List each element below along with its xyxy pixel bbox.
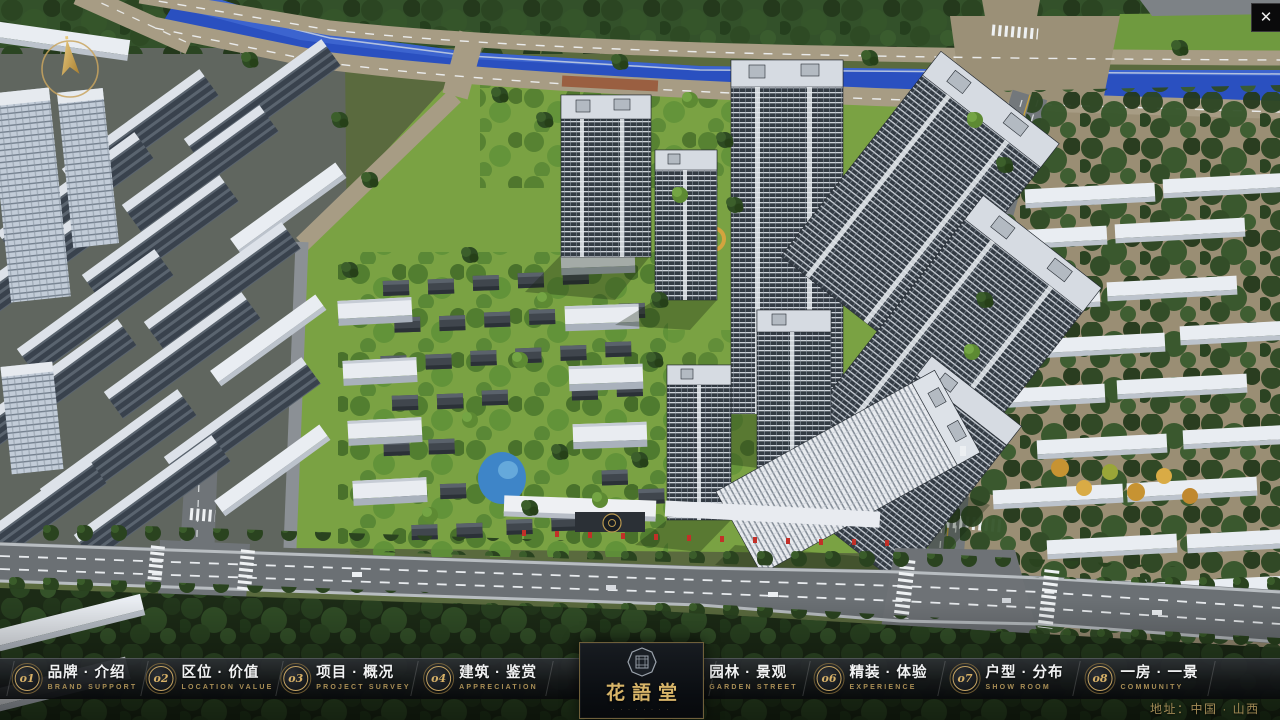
- logo-tagline: · · · · · · · ·: [613, 707, 671, 713]
- nav-badge: o8: [1088, 666, 1113, 691]
- divider: [6, 661, 14, 696]
- divider: [1072, 661, 1080, 696]
- masterplan-render[interactable]: [0, 0, 1280, 720]
- nav-label-zh: 品牌 · 介绍: [48, 666, 138, 681]
- nav-badge: o4: [426, 666, 451, 691]
- nav-badge: o6: [817, 666, 842, 691]
- divider: [1207, 661, 1215, 696]
- divider: [410, 661, 418, 696]
- nav-badge: o2: [149, 666, 174, 691]
- nav-item-interior[interactable]: o6 精装 · 体验 EXPERIENCE: [817, 659, 928, 698]
- nav-label-en: GARDEN STREET: [709, 684, 798, 691]
- nav-badge: o7: [953, 666, 978, 691]
- nav-label-zh: 精装 · 体验: [850, 666, 928, 681]
- divider: [140, 661, 148, 696]
- nav-item-floorplan[interactable]: o7 户型 · 分布 SHOW ROOM: [953, 659, 1064, 698]
- nav-badge: o1: [15, 666, 40, 691]
- project-logo[interactable]: 花語堂 · · · · · · · ·: [579, 642, 704, 719]
- nav-item-brand[interactable]: o1 品牌 · 介绍 BRAND SUPPORT: [15, 659, 138, 698]
- nav-label-en: PROJECT SURVEY: [316, 684, 410, 691]
- nav-label-zh: 区位 · 价值: [182, 666, 274, 681]
- nav-label-en: COMMUNITY: [1121, 684, 1199, 691]
- nav-label-zh: 户型 · 分布: [986, 666, 1064, 681]
- divider: [802, 661, 810, 696]
- nav-item-views[interactable]: o8 一房 · 一景 COMMUNITY: [1088, 659, 1199, 698]
- close-icon: ✕: [1260, 10, 1273, 25]
- nav-item-architecture[interactable]: o4 建筑 · 鉴赏 APPRECIATION: [426, 659, 538, 698]
- divider: [937, 661, 945, 696]
- nav-item-location[interactable]: o2 区位 · 价值 LOCATION VALUE: [149, 659, 274, 698]
- nav-label-zh: 建筑 · 鉴赏: [459, 666, 538, 681]
- close-button[interactable]: ✕: [1251, 3, 1280, 32]
- divider: [545, 661, 553, 696]
- compass-icon: [34, 32, 106, 104]
- nav-label-zh: 项目 · 概况: [316, 666, 410, 681]
- seal-emblem-icon: [627, 647, 657, 677]
- project-name: 花語堂: [599, 678, 684, 705]
- nav-label-en: SHOW ROOM: [986, 684, 1064, 691]
- nav-label-en: APPRECIATION: [459, 684, 538, 691]
- nav-badge: o3: [283, 666, 308, 691]
- nav-label-zh: 园林 · 景观: [709, 666, 798, 681]
- nav-item-project[interactable]: o3 项目 · 概况 PROJECT SURVEY: [283, 659, 410, 698]
- nav-label-en: BRAND SUPPORT: [48, 684, 138, 691]
- project-address: 地址：中国 · 山西: [1150, 700, 1260, 717]
- nav-label-en: EXPERIENCE: [850, 684, 928, 691]
- nav-label-en: LOCATION VALUE: [182, 684, 274, 691]
- nav-label-zh: 一房 · 一景: [1121, 666, 1199, 681]
